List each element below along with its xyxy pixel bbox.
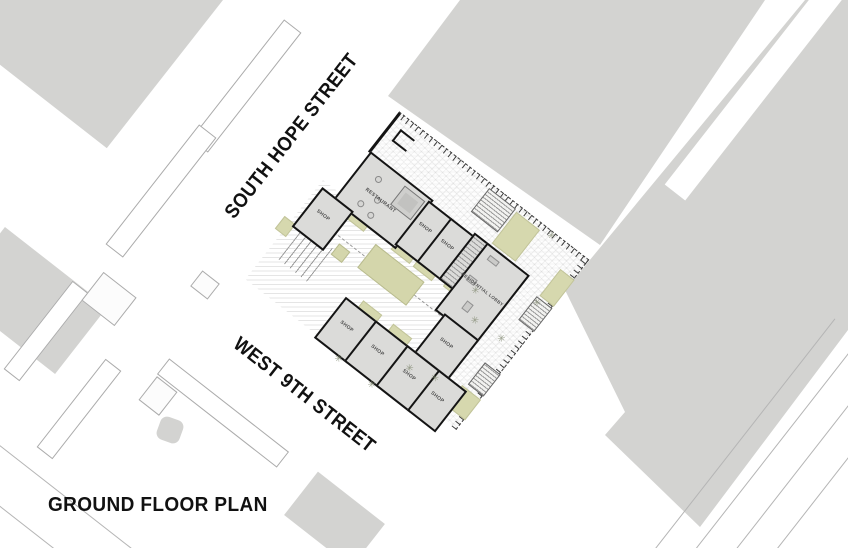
ground-floor-plan-drawing: SOUTH HOPE STREET WEST 9TH STREET	[0, 0, 848, 548]
small-block-blob	[155, 415, 186, 446]
street-strip	[37, 359, 122, 460]
plan-title: GROUND FLOOR PLAN	[48, 494, 268, 517]
city-block-south	[284, 472, 385, 548]
street-line	[0, 435, 146, 548]
restaurant-stage-inner	[397, 193, 418, 214]
